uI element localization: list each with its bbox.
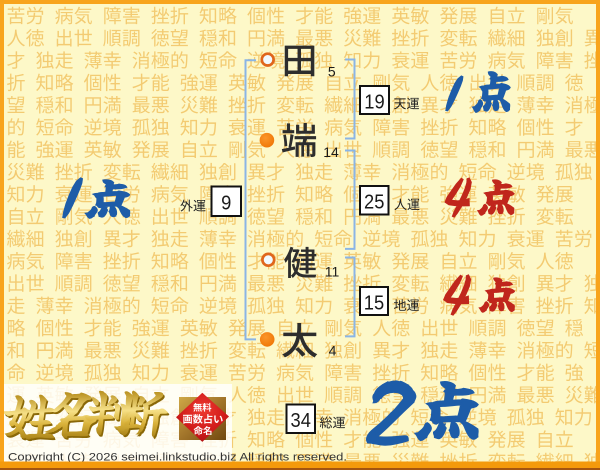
svg-text:4: 4: [329, 343, 337, 359]
svg-text:9: 9: [221, 193, 231, 215]
svg-text:14: 14: [323, 144, 339, 160]
svg-text:11: 11: [325, 264, 340, 280]
svg-text:34: 34: [291, 410, 311, 432]
svg-text:15: 15: [364, 292, 384, 314]
svg-text:5: 5: [328, 63, 336, 79]
svg-text:25: 25: [364, 192, 384, 214]
svg-text:19: 19: [364, 91, 384, 113]
